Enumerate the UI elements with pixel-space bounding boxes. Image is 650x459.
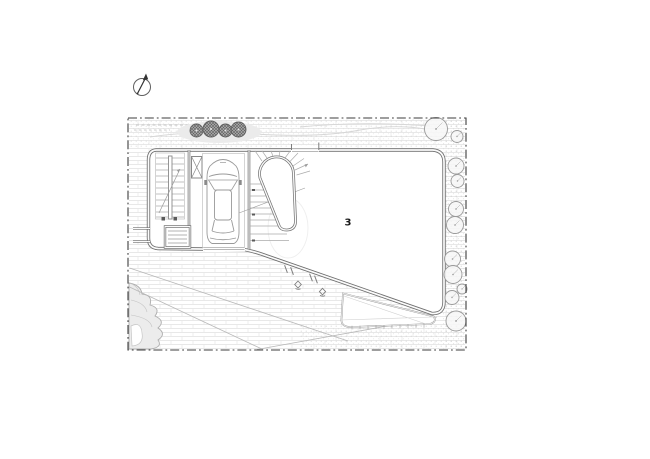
room-number-label: 3 [345,218,352,229]
duct-shaft [192,157,203,179]
garage-door [203,246,245,252]
hedge-shrubs [177,121,261,143]
elevator-shaft [165,227,190,248]
site-plan-drawing: 3 [0,0,650,459]
north-arrow-icon [134,74,151,96]
site-plan: 3 [0,0,650,459]
